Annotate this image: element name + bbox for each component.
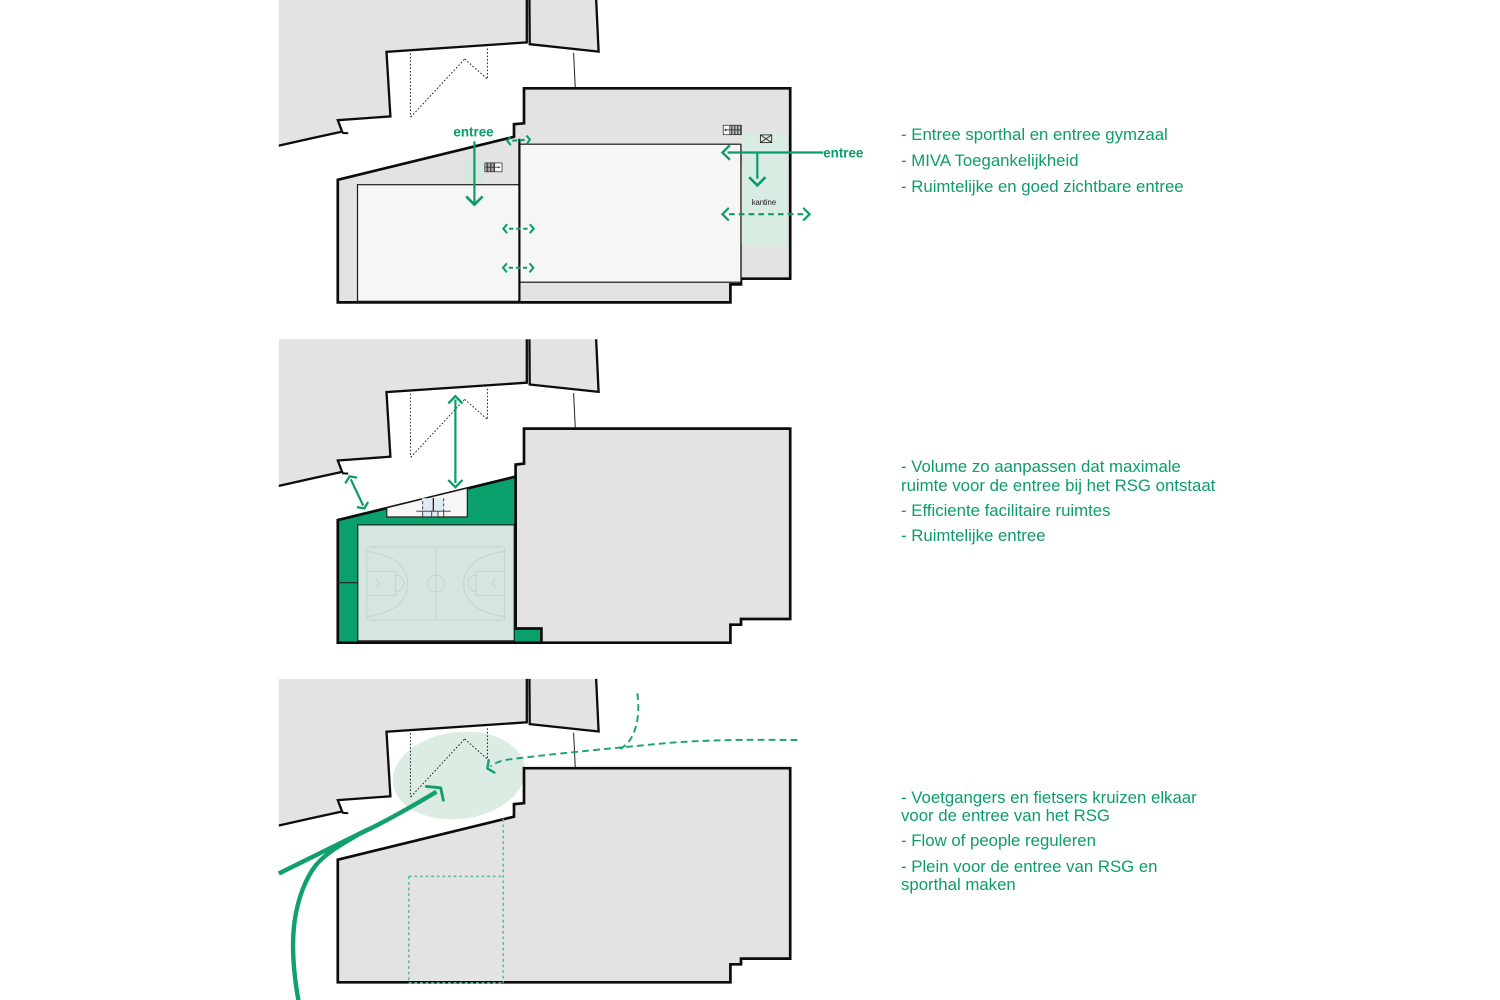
svg-text:kantine: kantine xyxy=(752,198,776,207)
svg-text:entree: entree xyxy=(823,146,863,161)
svg-text:entree: entree xyxy=(453,125,493,140)
